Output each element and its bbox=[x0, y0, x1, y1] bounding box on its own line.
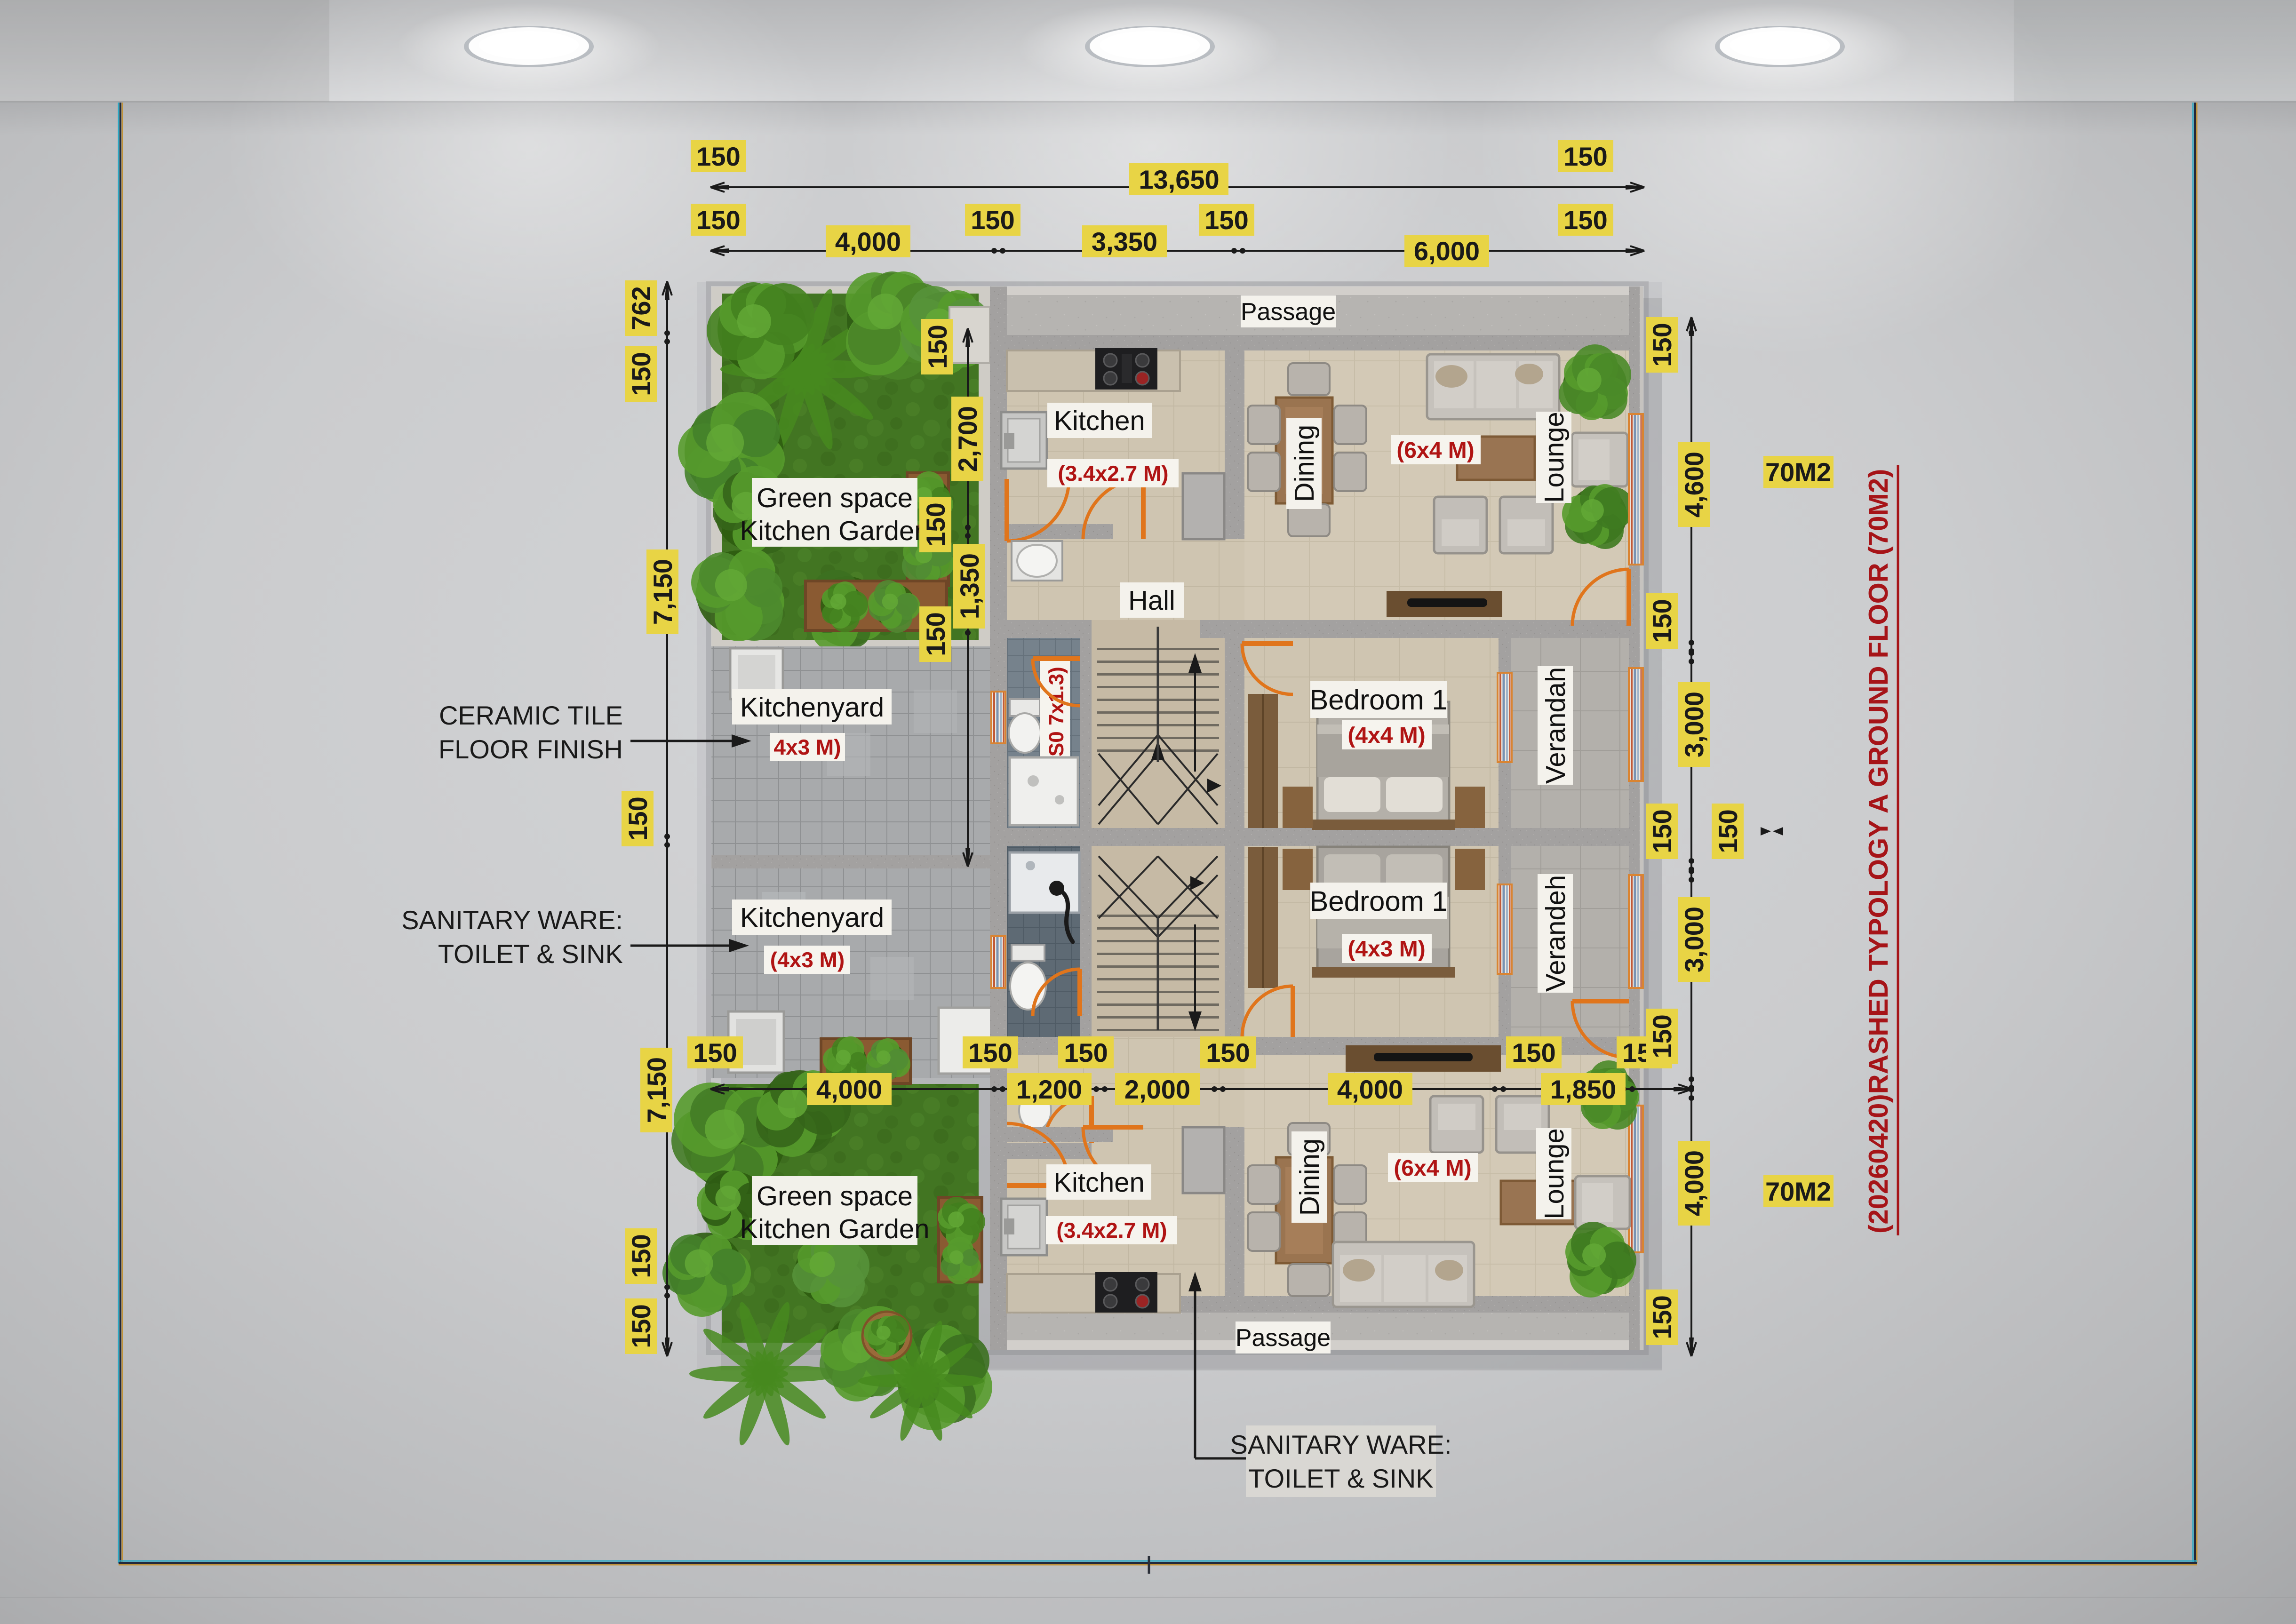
svg-text:(4x3 M): (4x3 M) bbox=[770, 947, 845, 972]
svg-text:Green space: Green space bbox=[757, 483, 913, 513]
svg-text:70M2: 70M2 bbox=[1765, 457, 1831, 487]
svg-text:150: 150 bbox=[1563, 205, 1607, 235]
svg-text:3,000: 3,000 bbox=[1679, 692, 1709, 757]
svg-text:3,350: 3,350 bbox=[1092, 227, 1157, 256]
svg-text:4,000: 4,000 bbox=[1337, 1075, 1403, 1104]
svg-text:6,000: 6,000 bbox=[1414, 236, 1480, 266]
svg-text:FLOOR FINISH: FLOOR FINISH bbox=[438, 734, 623, 764]
svg-text:2,000: 2,000 bbox=[1124, 1075, 1190, 1104]
svg-text:Lounge: Lounge bbox=[1539, 412, 1570, 503]
svg-text:1,350: 1,350 bbox=[955, 553, 984, 619]
svg-text:150: 150 bbox=[696, 205, 740, 235]
svg-text:Kitchenyard: Kitchenyard bbox=[740, 692, 884, 723]
svg-text:Verandah: Verandah bbox=[1540, 667, 1571, 784]
svg-text:150: 150 bbox=[1647, 599, 1677, 643]
svg-text:(6x4 M): (6x4 M) bbox=[1394, 1156, 1471, 1181]
svg-text:150: 150 bbox=[623, 796, 653, 840]
svg-text:762: 762 bbox=[626, 286, 656, 330]
svg-text:3,000: 3,000 bbox=[1679, 907, 1709, 972]
svg-text:2,700: 2,700 bbox=[953, 406, 982, 472]
svg-text:CERAMIC TILE: CERAMIC TILE bbox=[439, 701, 623, 730]
svg-text:SANITARY WARE:: SANITARY WARE: bbox=[401, 905, 623, 935]
svg-text:70M2: 70M2 bbox=[1765, 1177, 1831, 1206]
svg-text:150: 150 bbox=[693, 1038, 737, 1067]
svg-text:Kitchenyard: Kitchenyard bbox=[740, 902, 884, 933]
svg-text:150: 150 bbox=[1204, 205, 1248, 235]
svg-text:150: 150 bbox=[626, 352, 656, 396]
svg-text:Bedroom 1: Bedroom 1 bbox=[1309, 885, 1448, 917]
svg-text:150: 150 bbox=[1064, 1038, 1108, 1067]
svg-text:4,000: 4,000 bbox=[1679, 1150, 1709, 1216]
svg-text:Passage: Passage bbox=[1236, 1324, 1331, 1352]
svg-text:Passage: Passage bbox=[1241, 298, 1336, 326]
svg-text:150: 150 bbox=[971, 205, 1014, 235]
svg-text:(3.4x2.7 M): (3.4x2.7 M) bbox=[1056, 1218, 1167, 1242]
svg-text:Dining: Dining bbox=[1294, 1138, 1325, 1216]
svg-text:(S0 7x1.3): (S0 7x1.3) bbox=[1045, 667, 1068, 763]
svg-text:13,650: 13,650 bbox=[1139, 165, 1219, 194]
svg-text:(4x3 M): (4x3 M) bbox=[1347, 937, 1425, 962]
svg-text:4,600: 4,600 bbox=[1679, 452, 1709, 517]
svg-text:150: 150 bbox=[1713, 809, 1743, 853]
svg-text:Kitchen: Kitchen bbox=[1053, 1167, 1144, 1198]
svg-text:4x3 M): 4x3 M) bbox=[773, 735, 841, 759]
svg-text:(4x4 M): (4x4 M) bbox=[1347, 723, 1425, 748]
svg-text:150: 150 bbox=[626, 1304, 656, 1348]
svg-text:Green space: Green space bbox=[757, 1181, 913, 1211]
svg-text:150: 150 bbox=[1512, 1038, 1555, 1067]
svg-text:Kitchen Garden: Kitchen Garden bbox=[740, 516, 929, 546]
svg-text:(3.4x2.7 M): (3.4x2.7 M) bbox=[1058, 461, 1168, 486]
svg-text:(6x4 M): (6x4 M) bbox=[1396, 438, 1474, 463]
svg-text:TOILET & SINK: TOILET & SINK bbox=[1248, 1464, 1433, 1493]
svg-text:150: 150 bbox=[1647, 809, 1677, 853]
svg-text:150: 150 bbox=[1647, 1014, 1677, 1058]
svg-text:150: 150 bbox=[1647, 323, 1677, 366]
svg-text:1,850: 1,850 bbox=[1550, 1075, 1616, 1104]
svg-text:150: 150 bbox=[923, 325, 952, 368]
svg-text:7,150: 7,150 bbox=[648, 559, 678, 625]
svg-text:150: 150 bbox=[626, 1234, 656, 1278]
svg-text:Hall: Hall bbox=[1128, 585, 1175, 616]
svg-text:150: 150 bbox=[968, 1038, 1012, 1067]
svg-text:1,200: 1,200 bbox=[1016, 1075, 1082, 1104]
svg-text:150: 150 bbox=[1563, 142, 1607, 171]
svg-text:Bedroom 1: Bedroom 1 bbox=[1309, 684, 1448, 716]
svg-text:4,000: 4,000 bbox=[816, 1075, 882, 1104]
svg-text:150: 150 bbox=[1647, 1295, 1677, 1339]
svg-text:Verandeh: Verandeh bbox=[1540, 875, 1571, 992]
svg-text:150: 150 bbox=[921, 612, 950, 656]
svg-text:Kitchen Garden: Kitchen Garden bbox=[740, 1214, 929, 1244]
svg-text:150: 150 bbox=[1206, 1038, 1250, 1067]
svg-text:150: 150 bbox=[921, 502, 950, 546]
svg-text:Dining: Dining bbox=[1289, 425, 1320, 502]
svg-text:150: 150 bbox=[696, 142, 740, 171]
svg-text:7,150: 7,150 bbox=[642, 1057, 671, 1123]
svg-text:Lounge: Lounge bbox=[1539, 1128, 1570, 1219]
svg-text:(20260420)RASHED TYPOLOGY A GR: (20260420)RASHED TYPOLOGY A GROUND FLOOR… bbox=[1863, 469, 1894, 1234]
svg-text:SANITARY WARE:: SANITARY WARE: bbox=[1230, 1430, 1452, 1459]
svg-text:TOILET & SINK: TOILET & SINK bbox=[438, 939, 623, 969]
svg-text:4,000: 4,000 bbox=[835, 227, 901, 256]
svg-text:Kitchen: Kitchen bbox=[1054, 406, 1145, 436]
